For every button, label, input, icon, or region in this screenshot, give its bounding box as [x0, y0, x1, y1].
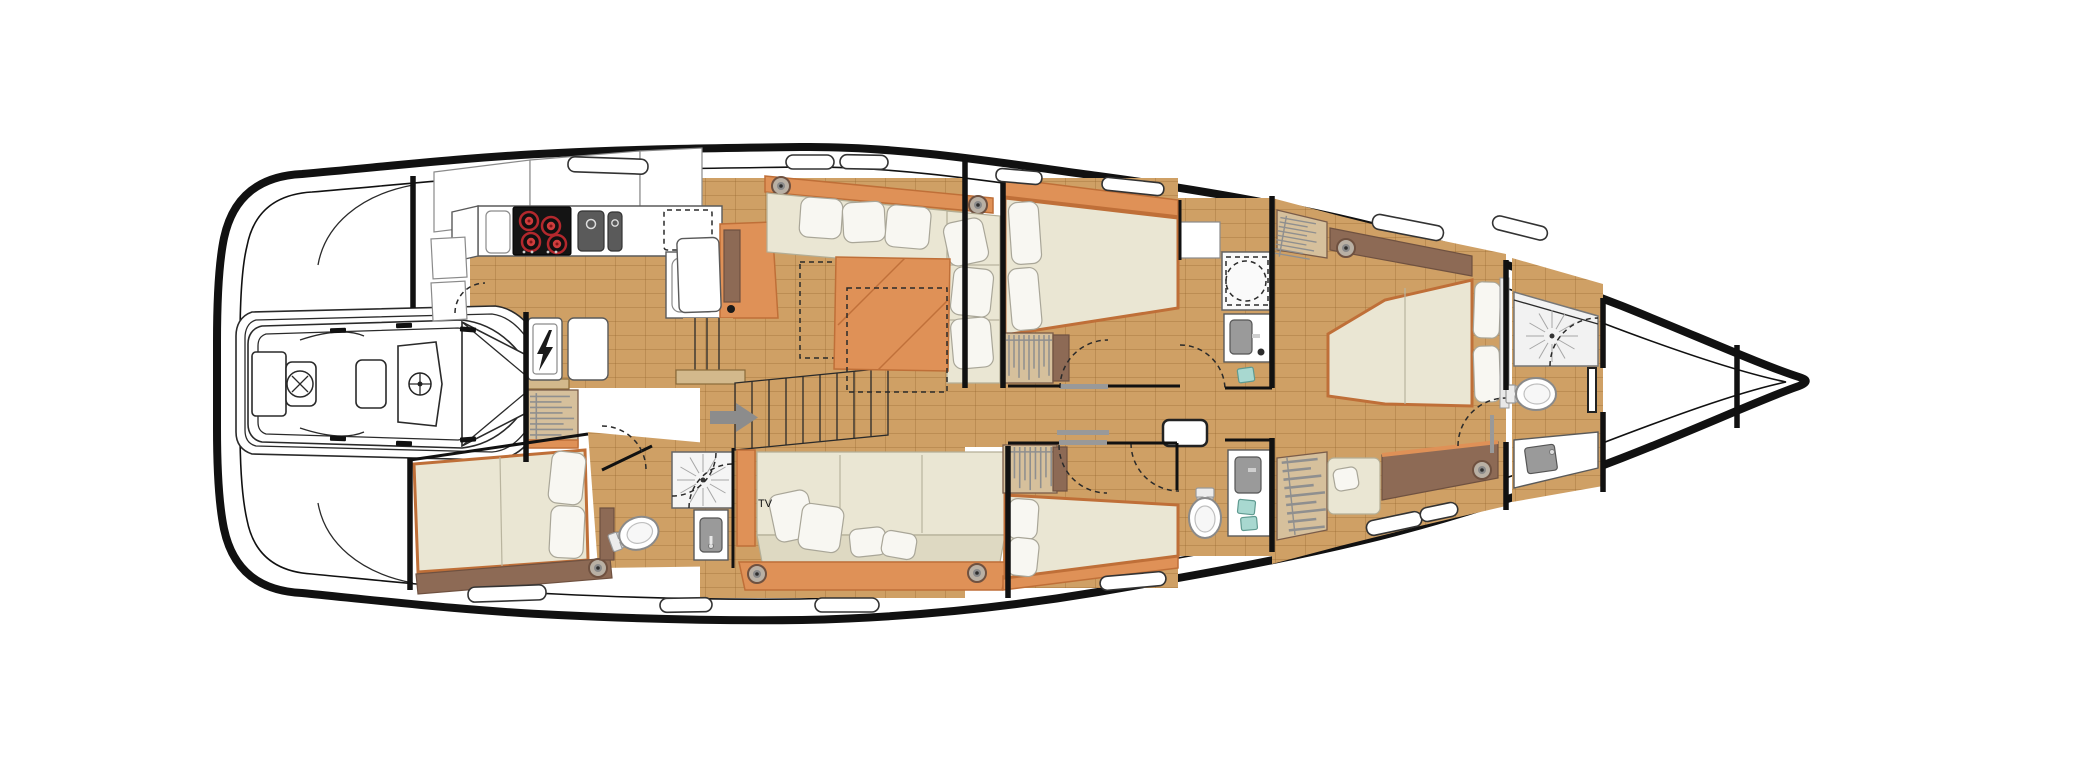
galley-sink [578, 211, 604, 251]
tv-cabinet [737, 450, 755, 546]
speaker-icon [1337, 239, 1355, 257]
bed-pillow [1006, 537, 1040, 578]
sofa-pillow [950, 266, 995, 318]
seat-pillow [1332, 466, 1359, 492]
tender-seat [356, 360, 386, 408]
main-stairs [735, 368, 888, 450]
head-sink [1230, 320, 1252, 354]
speaker-icon [968, 564, 986, 582]
hull-window [660, 598, 712, 613]
coachroof-window [1491, 214, 1549, 241]
drain-dot [1258, 349, 1265, 356]
wardrobe-door [1053, 447, 1067, 491]
nav-seat-cushion [724, 230, 740, 302]
galley-lower-locker [431, 281, 467, 321]
coachroof-window [786, 155, 834, 169]
table-top [834, 257, 950, 371]
nav-fitting-dot [727, 305, 735, 313]
bed-pillow [549, 505, 586, 559]
galley-lower-locker [431, 237, 467, 279]
sofa-pillow [797, 502, 845, 553]
hull-window [815, 598, 879, 612]
chart-table [677, 237, 722, 312]
head-shelf [1180, 222, 1220, 258]
hull-window [468, 585, 546, 603]
tender-transom-box [252, 352, 286, 416]
burner-icon [522, 233, 540, 251]
door-rod [1060, 384, 1108, 389]
head-sink [1235, 457, 1261, 493]
owners-seat [1328, 458, 1380, 514]
sofa-pillow [950, 316, 994, 369]
galley-cabinet-door [486, 211, 510, 253]
tender-garage [236, 306, 560, 460]
speaker-icon [969, 196, 987, 214]
soap-tray [1237, 499, 1255, 515]
bed-pillow [1007, 267, 1042, 331]
deck-hatch [568, 157, 648, 175]
sofa-pillow [849, 526, 888, 558]
door-rod [1490, 415, 1494, 453]
bed-pillow [1008, 201, 1042, 265]
bed-pillow [1473, 282, 1501, 339]
step-landing-board [676, 370, 745, 384]
yacht-interior-floorplan: TV [0, 0, 2100, 768]
burner-icon [542, 217, 560, 235]
corridor-floor [965, 383, 1280, 447]
bed-pillow [547, 450, 586, 505]
floorplan-canvas: TV [0, 0, 2100, 768]
speaker-icon [1473, 461, 1491, 479]
salon-sofa-bottom: TV [737, 450, 1008, 590]
sofa-pillow [842, 201, 886, 243]
galley-sink-small [608, 212, 622, 251]
speaker-icon [748, 565, 766, 583]
tv-label: TV [758, 498, 773, 510]
burner-icon [520, 212, 538, 230]
sofa-pillow [884, 204, 931, 250]
door-rod [1059, 440, 1107, 445]
wardrobe-door [1053, 335, 1069, 381]
coachroof-window [840, 155, 888, 170]
aft-cabin [414, 450, 612, 594]
door-leaf [1588, 368, 1596, 412]
sofa-pillow [880, 529, 918, 561]
speaker-icon [589, 559, 607, 577]
sliding-door-rod [1057, 430, 1109, 435]
bed-pillow [1473, 346, 1501, 403]
sofa-pillow [799, 197, 844, 240]
speaker-icon [772, 177, 790, 195]
galley-upper-locker [640, 148, 702, 210]
bed-pillow [1007, 498, 1040, 540]
head-sink [1524, 444, 1557, 474]
soap-tray [1241, 516, 1258, 530]
soap-tray [1237, 367, 1255, 383]
burner-icon [548, 235, 566, 253]
locker-door [568, 318, 608, 380]
